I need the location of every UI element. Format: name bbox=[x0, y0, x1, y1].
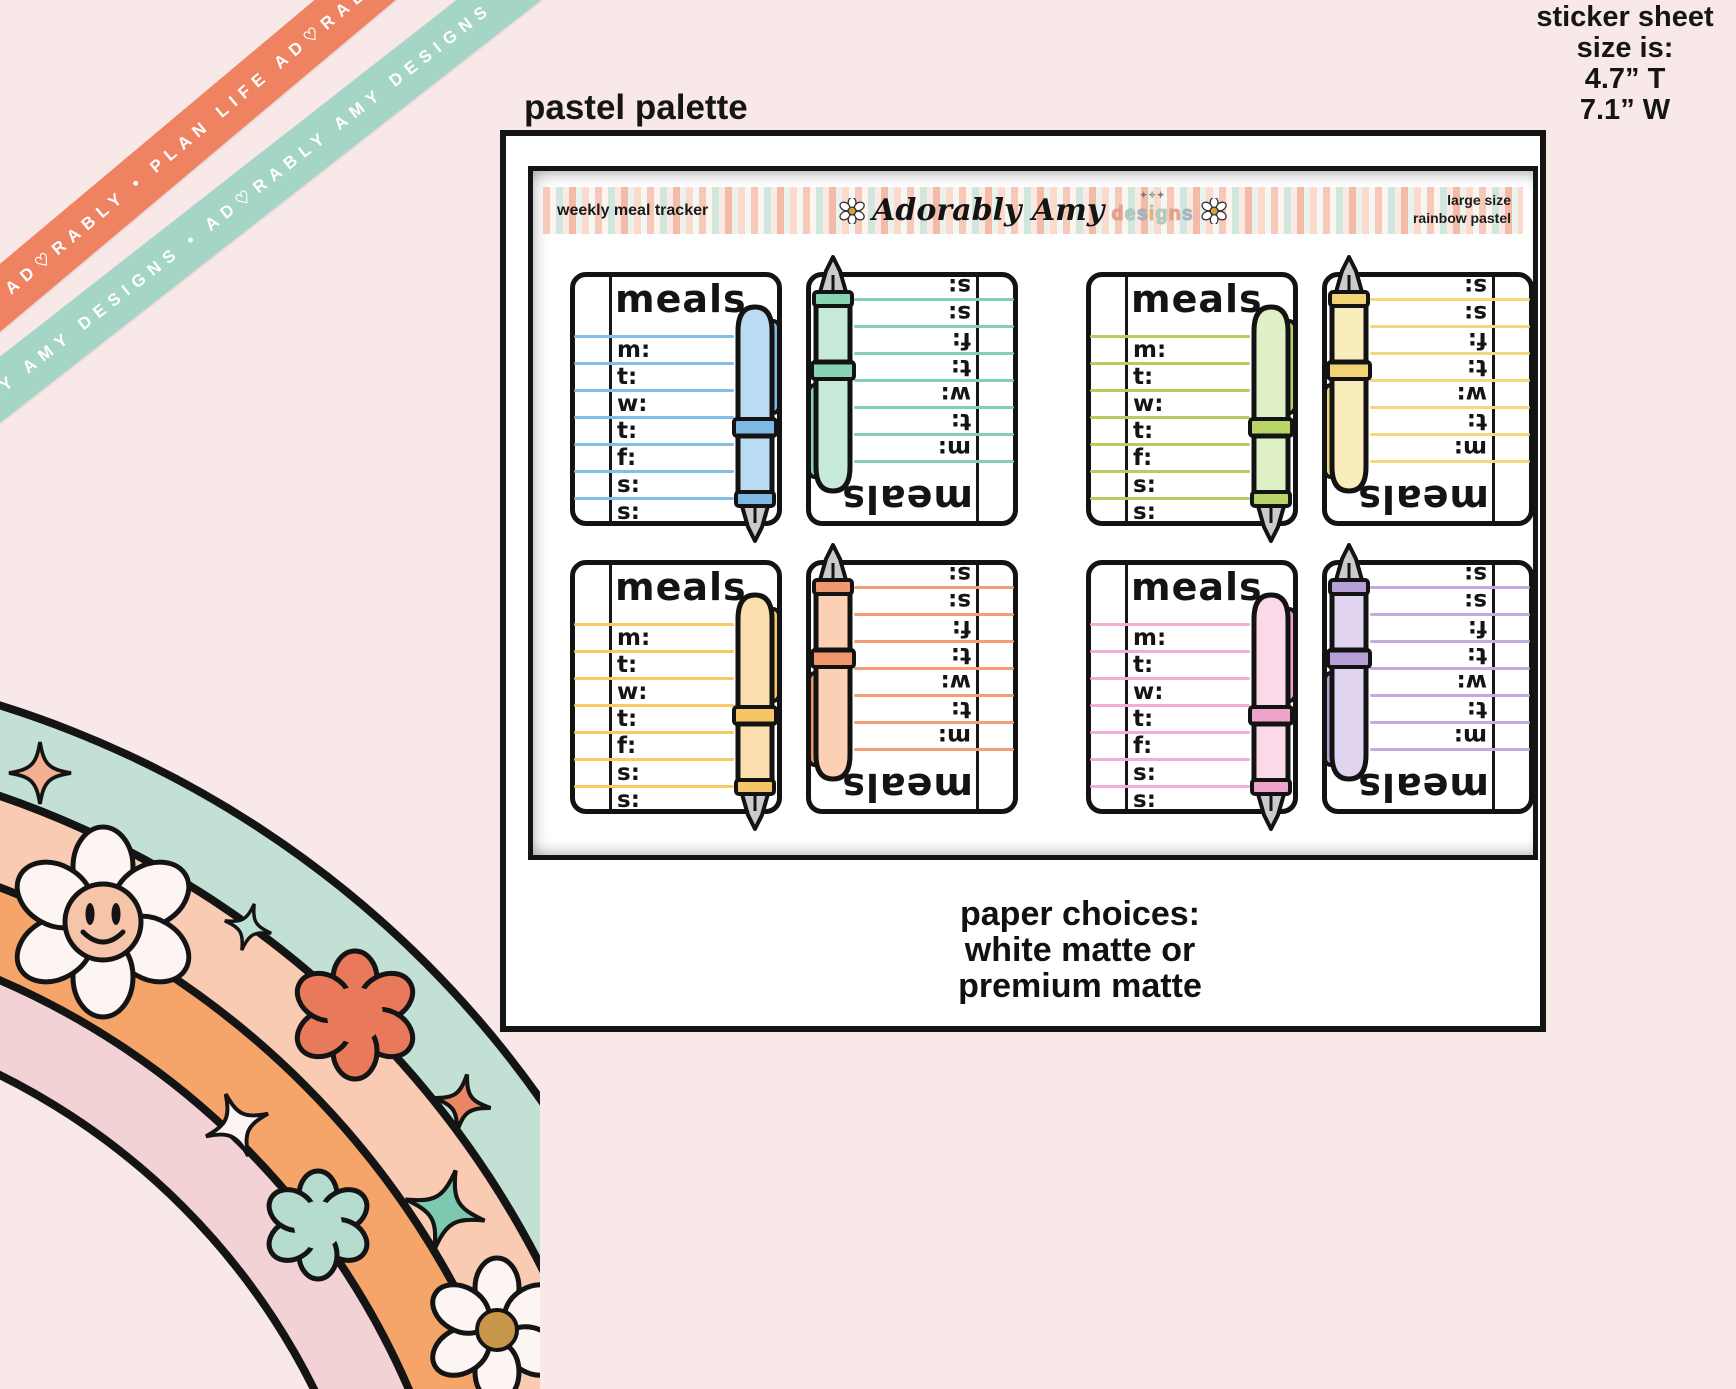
writing-line bbox=[574, 416, 734, 419]
day-label: m: bbox=[617, 337, 650, 363]
day-label: w: bbox=[941, 381, 971, 407]
writing-line bbox=[1370, 352, 1530, 355]
meals-title: meals bbox=[1131, 277, 1237, 321]
day-label: s: bbox=[617, 472, 640, 498]
day-label: w: bbox=[1133, 679, 1163, 705]
size-note-line: 7.1” W bbox=[1522, 95, 1728, 126]
writing-line bbox=[854, 613, 1014, 616]
day-label: t: bbox=[1133, 706, 1153, 732]
sheet-brand-header: weekly meal tracker Adorably Amy ✦✧✦ des… bbox=[543, 187, 1523, 234]
meal-tracker-sticker-green: mealsm:t:w:t:f:s:s: bbox=[1086, 272, 1298, 526]
writing-line bbox=[1090, 497, 1250, 500]
day-label: f: bbox=[1133, 733, 1152, 759]
margin-line-rule bbox=[609, 277, 612, 521]
writing-line bbox=[854, 460, 1014, 463]
meal-tracker-sticker-pink: mealsm:t:w:t:f:s:s: bbox=[1086, 560, 1298, 814]
writing-line bbox=[854, 298, 1014, 301]
day-label: m: bbox=[1454, 723, 1487, 749]
variant-line: rainbow pastel bbox=[1413, 209, 1511, 227]
pen-icon bbox=[729, 299, 781, 543]
day-label: t: bbox=[617, 418, 637, 444]
brand-sub-letter: e bbox=[1125, 203, 1137, 225]
meal-tracker-sticker-orange: mealsm:t:w:t:f:s:s: bbox=[806, 560, 1018, 814]
sheet-title: weekly meal tracker bbox=[557, 202, 708, 220]
day-label: s: bbox=[1464, 273, 1487, 299]
pen-icon bbox=[807, 543, 859, 787]
margin-line-rule bbox=[976, 277, 979, 521]
writing-line bbox=[1090, 623, 1250, 626]
rainbow-decoration bbox=[0, 640, 540, 1389]
product-listing-image: { "page": { "background": "#f8e8e8", "pa… bbox=[0, 0, 1736, 1389]
brand-sub-letter: n bbox=[1169, 203, 1182, 225]
day-label: f: bbox=[952, 327, 971, 353]
writing-line bbox=[574, 758, 734, 761]
writing-line bbox=[1090, 416, 1250, 419]
writing-line bbox=[854, 640, 1014, 643]
day-label: s: bbox=[1133, 472, 1156, 498]
margin-line-rule bbox=[976, 565, 979, 809]
writing-line bbox=[574, 650, 734, 653]
day-label: t: bbox=[1133, 652, 1153, 678]
day-label: t: bbox=[951, 696, 971, 722]
day-label: m: bbox=[938, 435, 971, 461]
margin-line-rule bbox=[1492, 277, 1495, 521]
daisy-icon bbox=[1201, 198, 1227, 224]
writing-line bbox=[574, 362, 734, 365]
writing-line bbox=[574, 470, 734, 473]
writing-line bbox=[1090, 335, 1250, 338]
day-label: f: bbox=[617, 445, 636, 471]
writing-line bbox=[1370, 667, 1530, 670]
writing-line bbox=[854, 748, 1014, 751]
adorably-amy-logo: Adorably Amy ✦✧✦ designs bbox=[839, 187, 1227, 234]
margin-line-rule bbox=[609, 565, 612, 809]
writing-line bbox=[574, 497, 734, 500]
meals-title: meals bbox=[615, 565, 721, 609]
day-label: m: bbox=[1133, 337, 1166, 363]
writing-line bbox=[1370, 640, 1530, 643]
writing-line bbox=[574, 623, 734, 626]
writing-line bbox=[574, 731, 734, 734]
meals-title: meals bbox=[1383, 765, 1489, 809]
day-label: t: bbox=[1467, 696, 1487, 722]
margin-line-rule bbox=[1125, 565, 1128, 809]
writing-line bbox=[1370, 406, 1530, 409]
pen-icon bbox=[1245, 299, 1297, 543]
paper-note-line: premium matte bbox=[830, 968, 1330, 1004]
meals-title: meals bbox=[1131, 565, 1237, 609]
day-label: w: bbox=[1457, 381, 1487, 407]
meals-title: meals bbox=[867, 765, 973, 809]
writing-line bbox=[1090, 731, 1250, 734]
writing-line bbox=[854, 433, 1014, 436]
writing-line bbox=[854, 406, 1014, 409]
day-label: s: bbox=[1464, 300, 1487, 326]
day-label: s: bbox=[617, 787, 640, 813]
writing-line bbox=[1090, 650, 1250, 653]
writing-line bbox=[1090, 470, 1250, 473]
day-label: s: bbox=[1464, 588, 1487, 614]
writing-line bbox=[1370, 748, 1530, 751]
writing-line bbox=[1090, 758, 1250, 761]
day-label: s: bbox=[948, 273, 971, 299]
meals-title: meals bbox=[1383, 477, 1489, 521]
size-note-line: sticker sheet bbox=[1522, 2, 1728, 33]
brand-sub-letter: g bbox=[1155, 203, 1168, 225]
meal-tracker-sticker-purple: mealsm:t:w:t:f:s:s: bbox=[1322, 560, 1534, 814]
day-label: t: bbox=[617, 706, 637, 732]
day-label: s: bbox=[617, 499, 640, 525]
writing-line bbox=[854, 694, 1014, 697]
pen-icon bbox=[1245, 587, 1297, 831]
day-label: f: bbox=[1468, 615, 1487, 641]
day-label: m: bbox=[617, 625, 650, 651]
writing-line bbox=[1090, 362, 1250, 365]
pen-icon bbox=[1323, 543, 1375, 787]
day-label: m: bbox=[1133, 625, 1166, 651]
writing-line bbox=[854, 325, 1014, 328]
margin-line-rule bbox=[1492, 565, 1495, 809]
writing-line bbox=[574, 677, 734, 680]
brand-sub-letter: s bbox=[1182, 203, 1194, 225]
day-label: t: bbox=[951, 408, 971, 434]
day-label: f: bbox=[1468, 327, 1487, 353]
day-label: t: bbox=[1467, 408, 1487, 434]
paper-note-line: white matte or bbox=[830, 932, 1330, 968]
brand-script-text: Adorably Amy bbox=[872, 193, 1104, 228]
writing-line bbox=[1370, 586, 1530, 589]
day-label: t: bbox=[617, 364, 637, 390]
writing-line bbox=[1090, 389, 1250, 392]
writing-line bbox=[1370, 298, 1530, 301]
day-label: w: bbox=[1133, 391, 1163, 417]
writing-line bbox=[1370, 460, 1530, 463]
margin-line-rule bbox=[1125, 277, 1128, 521]
size-note-line: 4.7” T bbox=[1522, 64, 1728, 95]
writing-line bbox=[574, 785, 734, 788]
day-label: w: bbox=[617, 391, 647, 417]
meals-title: meals bbox=[615, 277, 721, 321]
pen-icon bbox=[1323, 255, 1375, 499]
day-label: w: bbox=[941, 669, 971, 695]
meal-tracker-sticker-mint: mealsm:t:w:t:f:s:s: bbox=[806, 272, 1018, 526]
writing-line bbox=[574, 335, 734, 338]
writing-line bbox=[1090, 785, 1250, 788]
day-label: f: bbox=[617, 733, 636, 759]
day-label: t: bbox=[617, 652, 637, 678]
brand-designs-text: ✦✧✦ designs bbox=[1111, 203, 1194, 226]
sparkles-icon: ✦✧✦ bbox=[1140, 190, 1166, 201]
brand-sub-letter: s bbox=[1137, 203, 1149, 225]
variant-line: large size bbox=[1413, 191, 1511, 209]
day-label: s: bbox=[948, 588, 971, 614]
meals-title: meals bbox=[867, 477, 973, 521]
writing-line bbox=[574, 704, 734, 707]
day-label: m: bbox=[938, 723, 971, 749]
day-label: s: bbox=[617, 760, 640, 786]
writing-line bbox=[1090, 443, 1250, 446]
day-label: s: bbox=[1133, 499, 1156, 525]
writing-line bbox=[1370, 721, 1530, 724]
day-label: f: bbox=[1133, 445, 1152, 471]
day-label: s: bbox=[1133, 787, 1156, 813]
meal-tracker-sticker-gold: mealsm:t:w:t:f:s:s: bbox=[570, 560, 782, 814]
writing-line bbox=[1370, 433, 1530, 436]
day-label: s: bbox=[1464, 561, 1487, 587]
writing-line bbox=[1090, 677, 1250, 680]
writing-line bbox=[1090, 704, 1250, 707]
day-label: t: bbox=[1467, 642, 1487, 668]
writing-line bbox=[854, 379, 1014, 382]
pen-icon bbox=[807, 255, 859, 499]
day-label: s: bbox=[948, 300, 971, 326]
writing-line bbox=[1370, 613, 1530, 616]
day-label: t: bbox=[951, 642, 971, 668]
day-label: t: bbox=[1467, 354, 1487, 380]
sticker-sheet-frame: weekly meal tracker Adorably Amy ✦✧✦ des… bbox=[528, 166, 1538, 860]
writing-line bbox=[854, 352, 1014, 355]
size-note-line: size is: bbox=[1522, 33, 1728, 64]
day-label: m: bbox=[1454, 435, 1487, 461]
writing-line bbox=[1370, 325, 1530, 328]
sticker-sheet-size-note: sticker sheet size is: 4.7” T 7.1” W bbox=[1522, 2, 1728, 126]
day-label: t: bbox=[1133, 364, 1153, 390]
writing-line bbox=[854, 721, 1014, 724]
sheet-variant-label: large size rainbow pastel bbox=[1413, 191, 1511, 227]
writing-line bbox=[854, 586, 1014, 589]
writing-line bbox=[574, 389, 734, 392]
writing-line bbox=[854, 667, 1014, 670]
day-label: t: bbox=[951, 354, 971, 380]
palette-label: pastel palette bbox=[524, 88, 748, 128]
meal-tracker-sticker-blue: mealsm:t:w:t:f:s:s: bbox=[570, 272, 782, 526]
day-label: f: bbox=[952, 615, 971, 641]
meal-tracker-sticker-yellow: mealsm:t:w:t:f:s:s: bbox=[1322, 272, 1534, 526]
day-label: s: bbox=[1133, 760, 1156, 786]
writing-line bbox=[574, 443, 734, 446]
day-label: w: bbox=[1457, 669, 1487, 695]
paper-choices-note: paper choices: white matte or premium ma… bbox=[830, 896, 1330, 1004]
pen-icon bbox=[729, 587, 781, 831]
day-label: t: bbox=[1133, 418, 1153, 444]
writing-line bbox=[1370, 379, 1530, 382]
day-label: s: bbox=[948, 561, 971, 587]
daisy-icon bbox=[839, 198, 865, 224]
sticker-sheet: weekly meal tracker Adorably Amy ✦✧✦ des… bbox=[533, 171, 1533, 855]
paper-note-line: paper choices: bbox=[830, 896, 1330, 932]
writing-line bbox=[1370, 694, 1530, 697]
brand-sub-letter: d bbox=[1111, 203, 1124, 225]
day-label: w: bbox=[617, 679, 647, 705]
